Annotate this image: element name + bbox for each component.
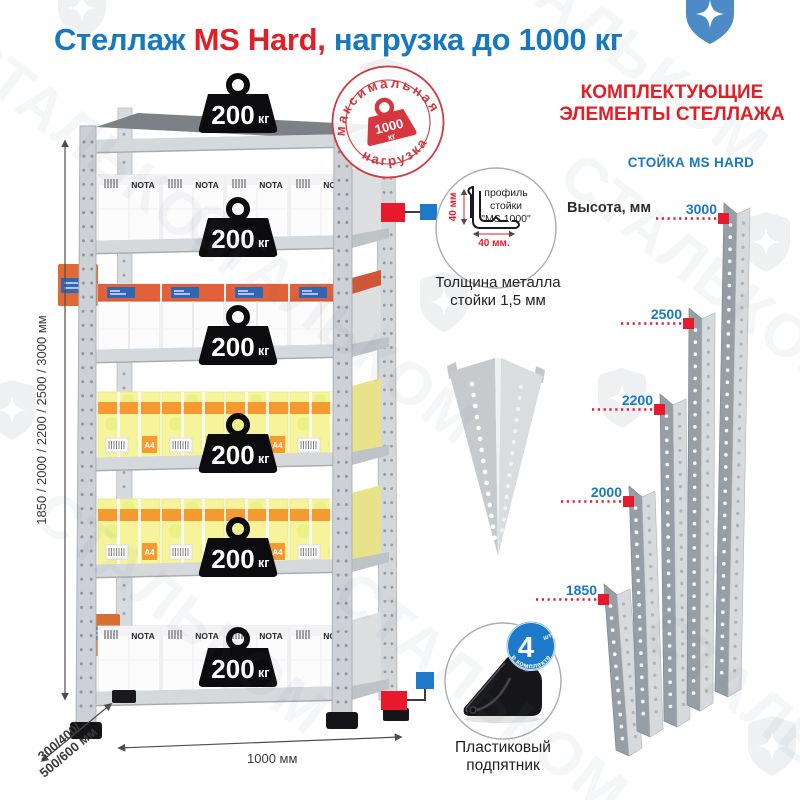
title-suffix: нагрузка до 1000 кг [326,22,623,57]
post-label-2200: 2200 [622,392,653,408]
profile-dim-h-label: 40 мм. [478,238,510,249]
svg-text:СТАЛЬКОМ: СТАЛЬКОМ [548,139,800,409]
brand-shield-logo [686,0,734,44]
thickness-note: Толщина металла стойки 1,5 мм [424,274,572,309]
profile-label-line2: стойки [490,200,522,212]
post-section-title: СТОЙКА MS HARD [606,155,776,171]
profile-label-line3: "MS 1000" [481,213,531,225]
height-options-label: 1850 / 2000 / 2200 / 2500 / 3000 мм [34,315,49,524]
plastic-foot-label: Пластиковый подпятник [428,739,578,776]
foot-front-right [326,712,358,729]
plastic-foot-label-line1: Пластиковый [428,739,578,757]
profile-detail: 40 мм 40 мм. профиль стойки "MS 1000" [436,168,556,288]
thickness-note-line2: стойки 1,5 мм [424,292,572,310]
foot-back-left [112,690,136,703]
components-header-line2: ЭЛЕМЕНТЫ СТЕЛЛАЖА [552,104,792,126]
profile-label-line1: профиль [484,187,528,199]
page: 200 кг NOTA [0,0,800,800]
post-label-2000: 2000 [591,484,622,500]
badge-count: 4 [518,632,534,664]
title-brand: MS Hard, [194,22,326,57]
components-header-line1: КОМПЛЕКТУЮЩИЕ [552,82,792,104]
post-label-2500: 2500 [651,306,682,322]
components-header: КОМПЛЕКТУЮЩИЕ ЭЛЕМЕНТЫ СТЕЛЛАЖА [552,82,792,126]
width-label: 1000 мм [247,751,297,766]
height-units-label: Высота, мм [567,200,651,217]
callout-post-profile [381,203,437,222]
page-title: Стеллаж MS Hard, нагрузка до 1000 кг [54,22,622,59]
profile-dim-v-label: 40 мм [448,193,459,222]
post-label-3000: 3000 [686,201,717,217]
title-prefix: Стеллаж [54,22,194,57]
post-label-1850: 1850 [566,582,597,598]
thickness-note-line1: Толщина металла [424,274,572,292]
plastic-foot-label-line2: подпятник [428,757,578,775]
